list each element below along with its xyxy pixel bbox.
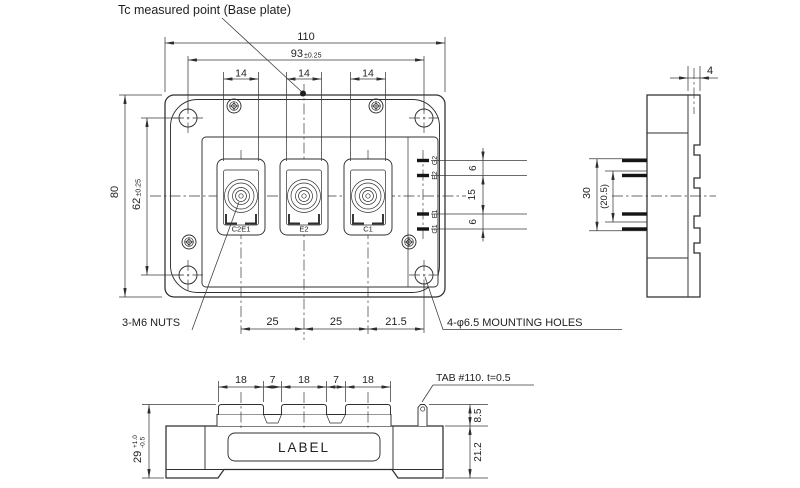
dim-25-b: 25 bbox=[330, 316, 342, 328]
dim-7-b: 7 bbox=[333, 374, 339, 386]
note-m6-nuts: 3-M6 NUTS bbox=[122, 317, 180, 329]
terminal-e2: E2 bbox=[280, 159, 328, 235]
dim-8-5: 8.5 bbox=[473, 408, 484, 422]
dim-29: 29 bbox=[132, 451, 144, 463]
side-view: 30 (20.5) 4 bbox=[581, 65, 718, 297]
tab bbox=[418, 405, 427, 427]
label-plate-text: LABEL bbox=[278, 440, 330, 455]
dim-21-2: 21.2 bbox=[473, 442, 484, 462]
dim-25-a: 25 bbox=[266, 316, 278, 328]
front-view: C2E1 E2 C1 bbox=[150, 84, 466, 340]
dim-29-tol-minus: -0.5 bbox=[140, 436, 147, 448]
note-tc-measured-point: Tc measured point (Base plate) bbox=[118, 3, 291, 17]
dim-110: 110 bbox=[297, 31, 315, 43]
dim-14-a: 14 bbox=[235, 68, 247, 80]
dim-6-top: 6 bbox=[468, 165, 479, 171]
module-outline-drawing: C2E1 E2 C1 bbox=[0, 0, 800, 488]
terminal-label-c1: C1 bbox=[363, 225, 373, 234]
terminal-label-e2: E2 bbox=[299, 225, 308, 234]
outline-drawing-page: C2E1 E2 C1 bbox=[0, 0, 800, 488]
terminal-c1: C1 bbox=[344, 159, 392, 235]
dim-4: 4 bbox=[707, 65, 713, 77]
dim-7-a: 7 bbox=[270, 374, 276, 386]
dim-18-a: 18 bbox=[235, 374, 247, 386]
dim-62: 62 bbox=[131, 198, 143, 210]
dim-29-tol-plus: +1.0 bbox=[132, 435, 139, 448]
dim-30: 30 bbox=[581, 187, 593, 199]
dim-14-c: 14 bbox=[362, 68, 374, 80]
note-tab: TAB #110. t=0.5 bbox=[436, 372, 511, 384]
dim-15: 15 bbox=[467, 189, 478, 201]
bottom-view: LABEL 18 7 18 7 18 TAB #110. t=0.5 8.5 bbox=[132, 372, 534, 478]
dim-6-bottom: 6 bbox=[468, 219, 479, 225]
dim-62-tol: ±0.25 bbox=[136, 179, 143, 197]
tc-point-marker bbox=[300, 91, 306, 97]
dim-93: 93 bbox=[291, 48, 303, 60]
dim-18-c: 18 bbox=[362, 374, 374, 386]
dim-21-5: 21.5 bbox=[385, 316, 406, 328]
terminal-label-c2e1: C2E1 bbox=[232, 225, 251, 234]
dim-14-b: 14 bbox=[298, 68, 310, 80]
dim-80: 80 bbox=[109, 186, 121, 198]
terminal-c2e1: C2E1 bbox=[217, 159, 265, 235]
note-mounting-holes: 4-φ6.5 MOUNTING HOLES bbox=[447, 317, 583, 329]
dim-93-tol: ±0.25 bbox=[304, 53, 322, 60]
dim-18-b: 18 bbox=[298, 374, 310, 386]
dim-20-5: (20.5) bbox=[599, 184, 610, 209]
